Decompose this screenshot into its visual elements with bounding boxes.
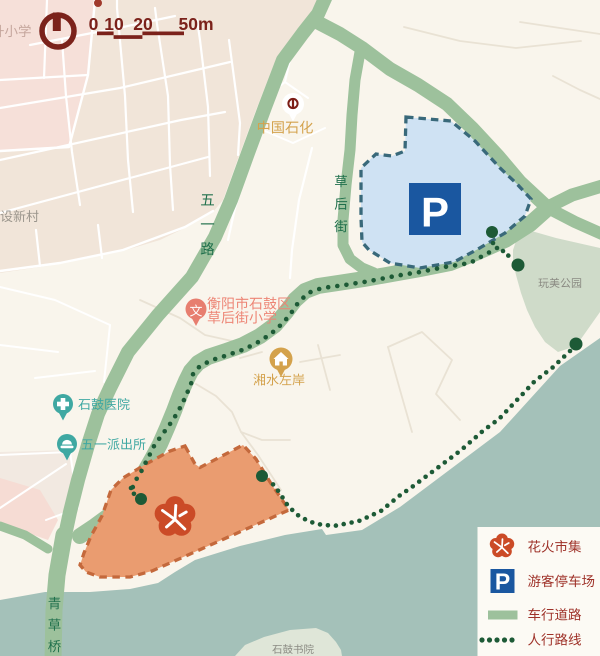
svg-text:0: 0 [89, 14, 99, 34]
svg-text:P: P [421, 189, 449, 236]
svg-text:50m: 50m [178, 14, 213, 34]
svg-text:10: 10 [104, 14, 124, 34]
svg-text:P: P [495, 569, 510, 595]
svg-text:20: 20 [133, 14, 153, 34]
